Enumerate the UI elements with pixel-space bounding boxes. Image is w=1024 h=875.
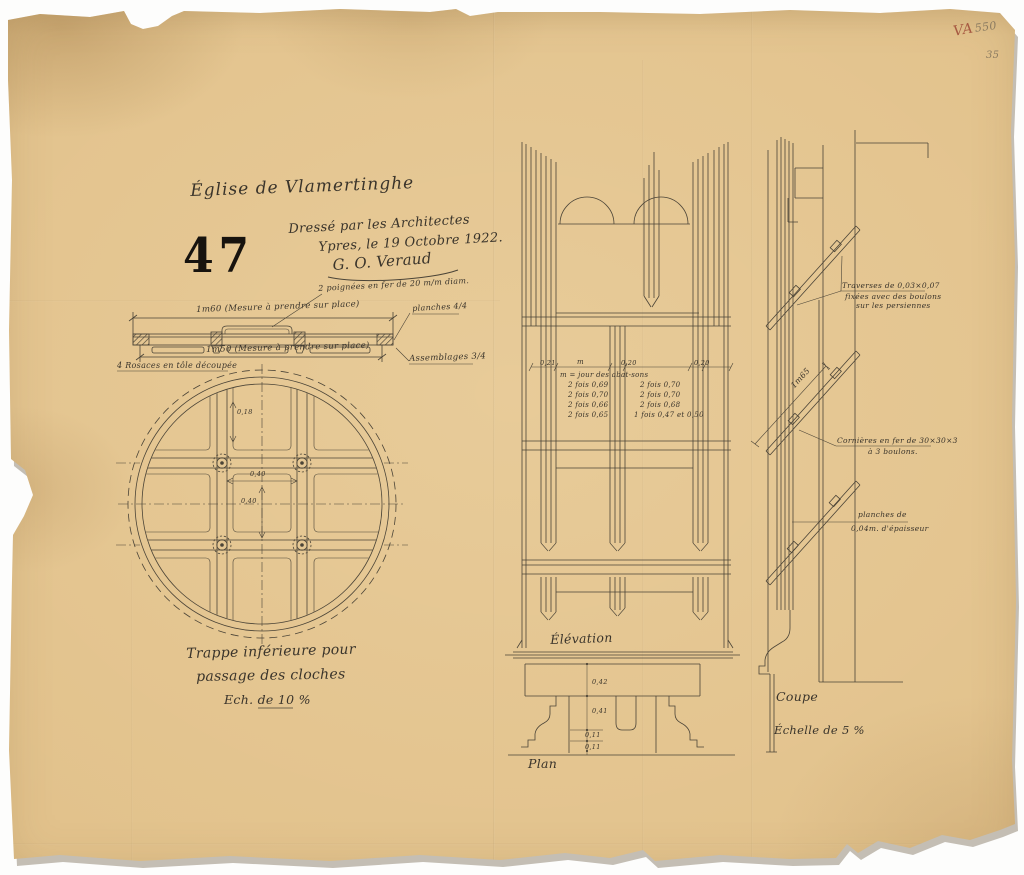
signature-flourish xyxy=(258,270,458,708)
elev-dim-m: m xyxy=(577,358,584,366)
annotation-rosaces: 4 Rosaces en tôle découpée xyxy=(117,361,237,370)
louver-row: 2 fois 0,69 xyxy=(568,381,608,389)
dimension-040-v: 0,40 xyxy=(241,497,257,505)
corner-mark-pencil-2: 35 xyxy=(986,50,999,61)
plan-label: Plan xyxy=(528,756,557,771)
annotation-planches-2: 0,04m. d'épaisseur xyxy=(851,524,929,533)
louver-row: 2 fois 0,65 xyxy=(568,411,608,419)
louver-note-title: m = jour des abat-sons xyxy=(560,371,648,379)
elevation-drawing xyxy=(505,142,740,658)
sheet-number-stamp: 47 xyxy=(183,228,254,284)
plan-dim-011b: 0,11 xyxy=(585,743,601,751)
elev-dim-021: 0,21 xyxy=(540,359,556,367)
louver-row: 1 fois 0,47 et 0,50 xyxy=(634,411,704,419)
annotation-planches-1: planches de xyxy=(858,510,907,519)
louver-row: 2 fois 0,70 xyxy=(640,381,680,389)
plan-dim-041: 0,41 xyxy=(592,707,608,715)
elev-dim-020b: 0,20 xyxy=(694,359,710,367)
coupe-label: Coupe xyxy=(776,689,818,704)
dimension-040-h: 0,40 xyxy=(250,470,266,478)
plan-dim-011a: 0,11 xyxy=(585,731,601,739)
annotation-traverses-3: sur les persiennes xyxy=(856,301,931,310)
plan-dim-042: 0,42 xyxy=(592,678,608,686)
louver-row: 2 fois 0,70 xyxy=(568,391,608,399)
caption-scale: Ech. de 10 % xyxy=(224,692,311,707)
louver-brackets xyxy=(787,240,841,552)
caption-line-2: passage des cloches xyxy=(196,666,346,685)
coupe-scale: Échelle de 5 % xyxy=(774,723,865,737)
plan-drawing xyxy=(508,663,735,755)
annotation-traverses-2: fixées avec des boulons xyxy=(845,292,941,301)
scanned-drawing-sheet: Église de Vlamertinghe 47 Dressé par les… xyxy=(0,0,1024,875)
annotation-traverses-1: Traverses de 0,03×0,07 xyxy=(842,281,940,290)
corner-mark-red: VA xyxy=(952,21,974,40)
dimension-018: 0,18 xyxy=(237,408,253,416)
elev-dim-020a: 0,20 xyxy=(621,359,637,367)
annotation-cornieres-1: Cornières en fer de 30×30×3 xyxy=(837,436,958,445)
louver-row: 2 fois 0,68 xyxy=(640,401,680,409)
trapdoor-plan-drawing xyxy=(116,364,408,646)
annotation-cornieres-2: à 3 boulons. xyxy=(868,447,918,456)
louver-row: 2 fois 0,66 xyxy=(568,401,608,409)
louver-row: 2 fois 0,70 xyxy=(640,391,680,399)
aged-paper: Église de Vlamertinghe 47 Dressé par les… xyxy=(0,0,1024,875)
elevation-label: Élévation xyxy=(550,630,613,647)
